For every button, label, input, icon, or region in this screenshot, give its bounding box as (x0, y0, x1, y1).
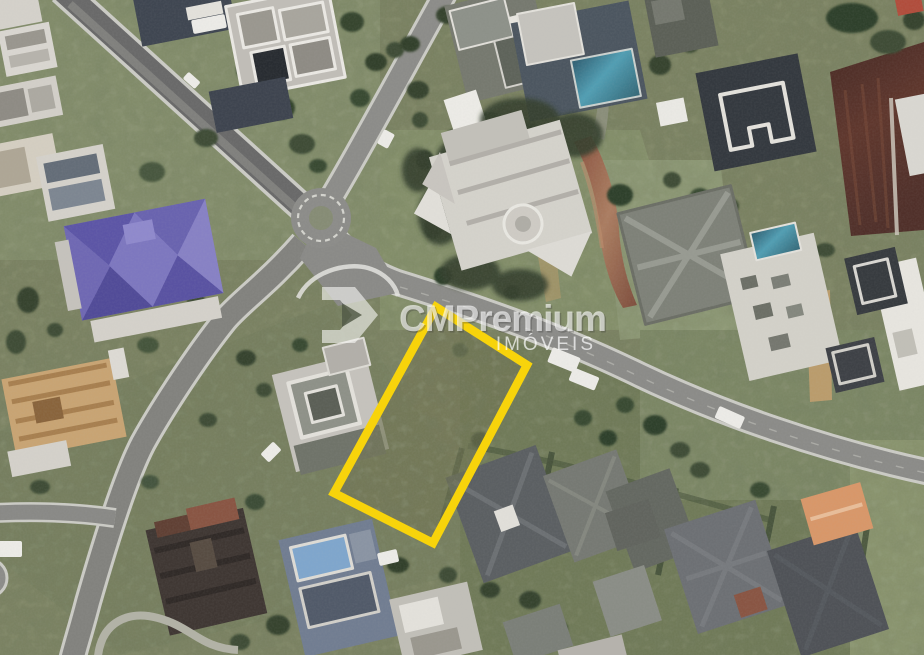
svg-text:IMÓVEIS: IMÓVEIS (496, 333, 596, 355)
svg-text:CMPremium: CMPremium (399, 298, 606, 339)
